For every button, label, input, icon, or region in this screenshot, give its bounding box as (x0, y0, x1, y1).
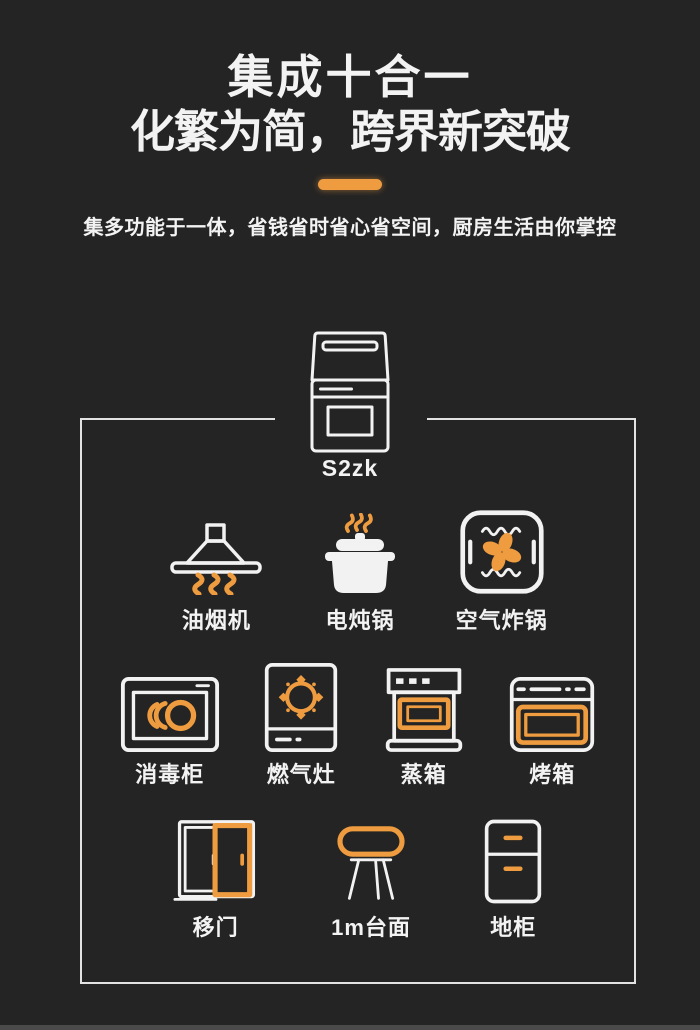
orange-divider-bar (318, 179, 382, 190)
feature-item: 电炖锅 (321, 507, 399, 635)
feature-frame: 油烟机 电炖锅 (80, 418, 636, 984)
poster: 集成十合一 化繁为简，跨界新突破 集多功能于一体，省钱省时省心省空间，厨房生活由… (0, 0, 700, 1030)
page-title-line2: 化繁为简，跨界新突破 (0, 95, 700, 160)
range-hood-icon (168, 507, 264, 595)
sliding-door-icon (173, 817, 259, 905)
feature-row-3: 移门 1m台面 (82, 817, 634, 942)
feature-item: 燃气灶 (263, 665, 339, 789)
feature-item: 移门 (173, 817, 259, 942)
feature-row-1: 油烟机 电炖锅 (82, 507, 634, 635)
disinfection-cabinet-icon (120, 665, 220, 753)
gas-stove-icon (263, 665, 339, 753)
integrated-stove-icon (308, 331, 392, 458)
steam-oven-icon (383, 665, 465, 753)
feature-label: 移门 (193, 910, 239, 942)
feature-label: 1m台面 (331, 910, 411, 942)
feature-label: 油烟机 (182, 603, 251, 635)
feature-label: 地柜 (490, 910, 536, 942)
floor-cabinet-icon (483, 817, 543, 905)
stew-pot-icon (321, 507, 399, 595)
feature-label: 消毒柜 (135, 757, 204, 789)
feature-item: 地柜 (483, 817, 543, 942)
product-model: S2zk (0, 455, 700, 482)
bottom-strip (0, 1025, 700, 1030)
feature-item: 油烟机 (168, 507, 264, 635)
feature-item: 空气炸锅 (456, 507, 548, 635)
feature-label: 燃气灶 (267, 757, 336, 789)
feature-label: 电炖锅 (325, 603, 394, 635)
feature-item: 消毒柜 (120, 665, 220, 789)
feature-label: 蒸箱 (401, 757, 447, 789)
feature-label: 空气炸锅 (456, 603, 548, 635)
feature-label: 烤箱 (529, 757, 575, 789)
oven-icon (508, 665, 596, 753)
feature-item: 烤箱 (508, 665, 596, 789)
countertop-icon (324, 817, 418, 905)
tagline: 集多功能于一体，省钱省时省心省空间，厨房生活由你掌控 (0, 211, 700, 240)
feature-item: 1m台面 (324, 817, 418, 942)
air-fryer-icon (459, 507, 545, 595)
feature-row-2: 消毒柜 (82, 665, 634, 789)
feature-item: 蒸箱 (383, 665, 465, 789)
